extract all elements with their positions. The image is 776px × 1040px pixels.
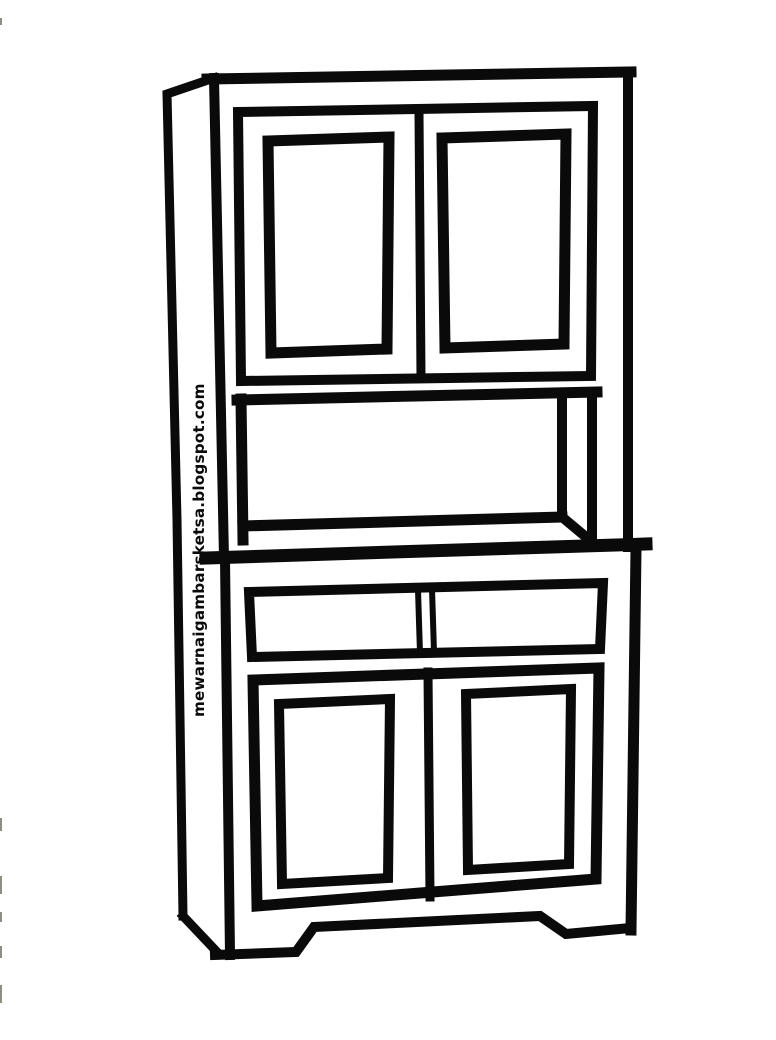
hutch-top-edge (207, 72, 631, 79)
cupboard-line-drawing: mewarnaigambarsketsa.blogspot.com (0, 0, 776, 1040)
watermark-text: mewarnaigambarsketsa.blogspot.com (190, 383, 208, 717)
base-front-left-edge (225, 560, 230, 955)
upper-doors-center-divider (419, 113, 421, 377)
base-front-right-edge (631, 549, 636, 930)
drawer-divider-line-left (418, 590, 420, 653)
drawer-divider-line-right (432, 589, 434, 652)
niche-left-edge (241, 399, 243, 540)
coloring-page: mewarnaigambarsketsa.blogspot.com (0, 0, 776, 1040)
lower-doors-center-divider (428, 672, 430, 897)
